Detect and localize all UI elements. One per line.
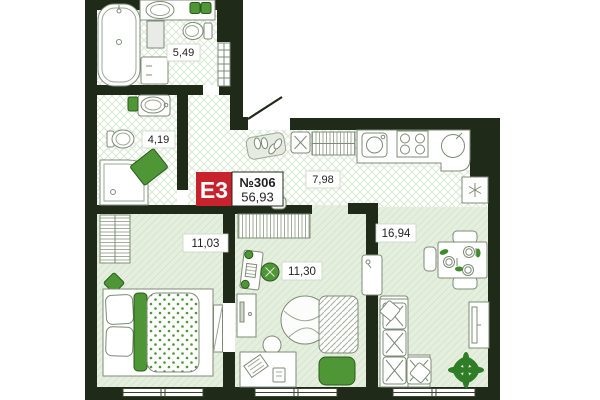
window-living <box>393 389 475 397</box>
vent-cross-icon <box>291 132 310 153</box>
radiator <box>312 132 355 155</box>
ottoman-green <box>319 357 355 385</box>
dining-chair-bottom <box>453 277 477 289</box>
floor-plan: E3 №306 56,93 5,49 4,19 7,98 11,03 11,30… <box>0 0 600 400</box>
single-bed <box>319 296 358 353</box>
badge-unit-number: №306 <box>239 175 275 190</box>
window-bedroom-middle <box>255 389 337 397</box>
wall-entry-step <box>230 117 248 130</box>
double-bed <box>103 289 213 376</box>
living-door <box>362 255 382 295</box>
kitchen-sink-icon <box>362 133 387 157</box>
wall-bedroom-divider-lower <box>223 352 235 387</box>
svg-text:16,94: 16,94 <box>382 228 411 240</box>
dining-chair-left <box>424 247 436 271</box>
svg-text:11,03: 11,03 <box>192 238 220 250</box>
label-bathroom-large: 5,49 <box>167 44 200 61</box>
pouf-round-green <box>261 263 279 281</box>
svg-text:11,30: 11,30 <box>288 266 316 278</box>
bed-runner-green <box>134 293 147 371</box>
window-bedroom-left <box>123 389 203 397</box>
toilet-large-bath <box>183 23 212 40</box>
wardrobe-left <box>100 215 130 263</box>
wall-left <box>85 0 97 400</box>
windows <box>123 389 475 397</box>
entrance-door-swing <box>248 97 282 119</box>
tv-stand <box>469 302 489 348</box>
floor-plan-svg: E3 №306 56,93 5,49 4,19 7,98 11,03 11,30… <box>0 0 600 400</box>
wall-bath-divider <box>85 85 203 95</box>
bedroom-left-door <box>214 305 223 352</box>
label-bedroom-left: 11,03 <box>183 234 228 252</box>
toilet-small-bath <box>107 130 134 148</box>
badge-layout-code: E3 <box>200 177 228 203</box>
wardrobe-middle <box>238 214 310 238</box>
dresser <box>141 57 168 84</box>
stove-icon <box>397 131 428 157</box>
towel-radiator <box>218 43 230 86</box>
floor-door-gap <box>312 205 348 214</box>
svg-text:4,19: 4,19 <box>148 134 169 146</box>
svg-text:5,49: 5,49 <box>173 47 194 59</box>
dining-table <box>438 242 487 278</box>
badge-total-area: 56,93 <box>241 190 274 205</box>
plant-shelf <box>240 250 263 290</box>
wall-right <box>488 118 500 400</box>
wall-bath-small-right <box>177 95 188 190</box>
label-hallway: 7,98 <box>306 171 340 188</box>
label-living: 16,94 <box>376 224 416 242</box>
dining-chair-top <box>453 231 477 243</box>
wall-kitchen-top <box>290 118 500 130</box>
dryer-icon <box>201 3 211 14</box>
desk-with-pc <box>237 294 256 337</box>
desk-bottom <box>240 352 296 387</box>
label-bathroom-small: 4,19 <box>142 131 175 148</box>
cabinet-tall <box>147 21 164 48</box>
bed-blanket-dotted <box>147 293 199 372</box>
label-bedroom-middle: 11,30 <box>282 262 322 280</box>
wall-bath-right-thick <box>217 10 230 42</box>
shelf-green <box>128 97 138 111</box>
washer-icon <box>190 3 200 14</box>
wall-bath-right <box>230 0 243 130</box>
vent-fan-icon <box>462 177 488 203</box>
wall-shaft <box>470 130 488 177</box>
wall-bedroom-divider-upper <box>223 214 235 303</box>
unit-badge: E3 №306 56,93 <box>196 172 283 206</box>
svg-text:7,98: 7,98 <box>312 174 333 186</box>
